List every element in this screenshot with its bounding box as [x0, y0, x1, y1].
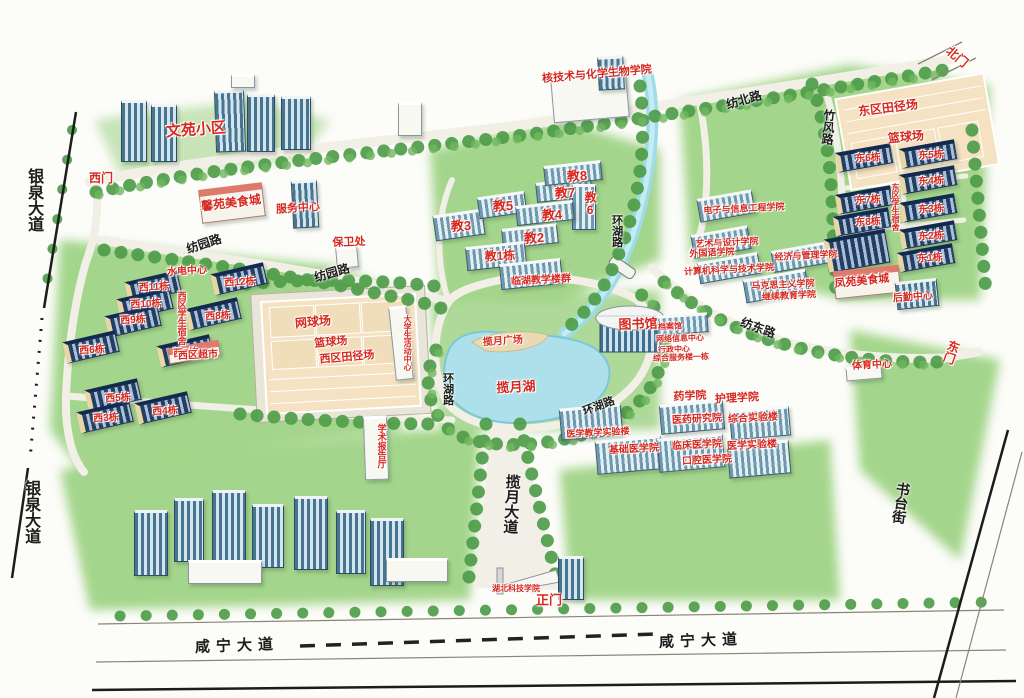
west-stadium	[251, 285, 431, 422]
campus-map: 文苑小区西门馨苑美食城服务中心保卫处核技术与化学生物学院水电中心西12栋西11栋…	[0, 0, 1024, 698]
library-building	[596, 306, 664, 352]
map-illustration	[0, 0, 1024, 698]
